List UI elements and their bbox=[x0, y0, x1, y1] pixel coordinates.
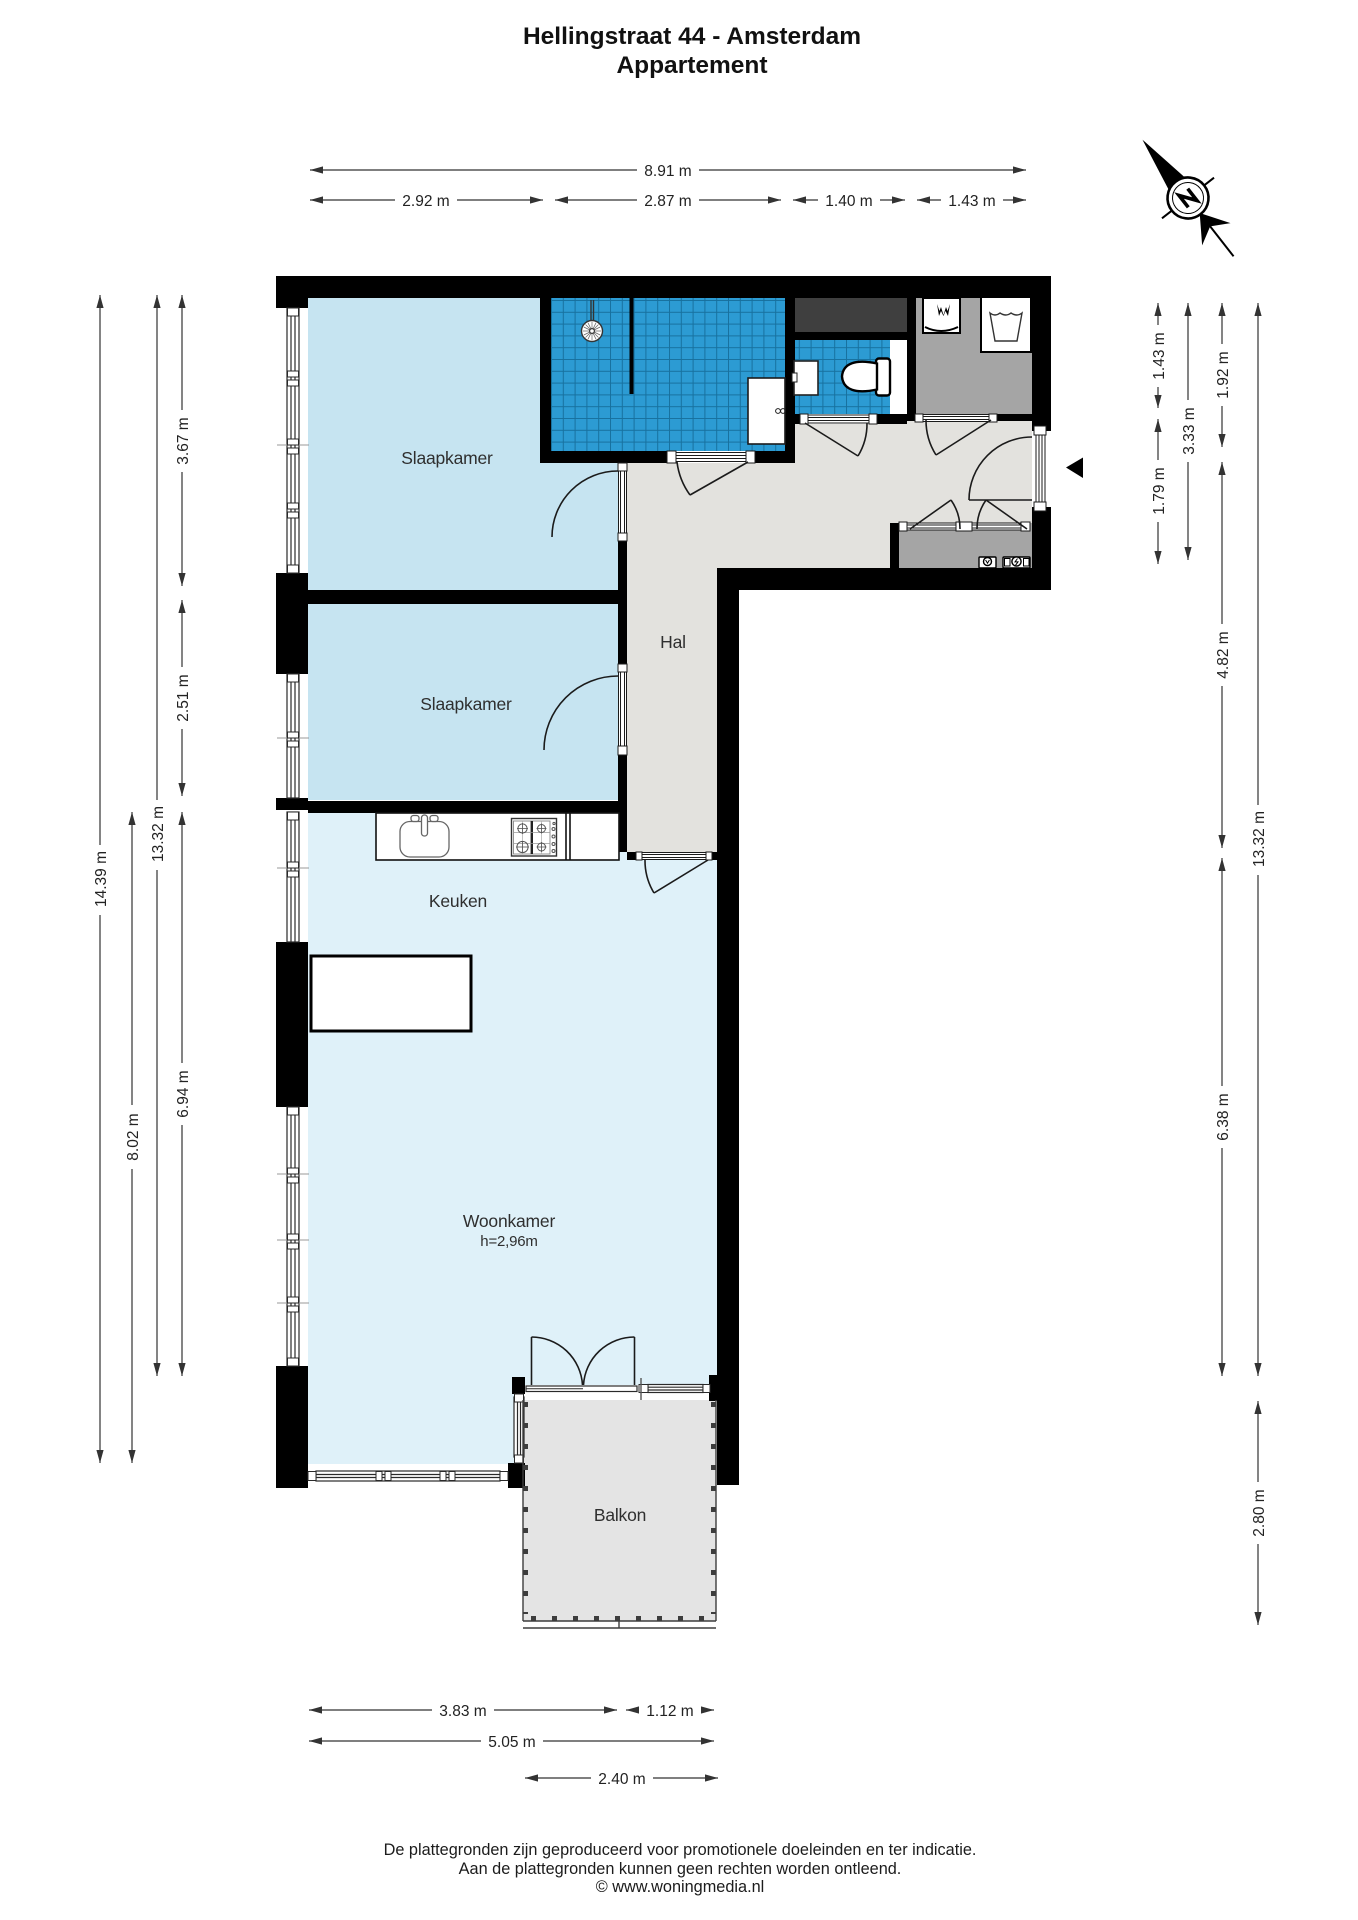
svg-text:Keuken: Keuken bbox=[429, 891, 487, 911]
svg-text:4.82 m: 4.82 m bbox=[1215, 631, 1232, 678]
svg-text:Woonkamer: Woonkamer bbox=[463, 1211, 556, 1231]
svg-text:1.40 m: 1.40 m bbox=[825, 193, 872, 210]
svg-text:Aan de plattegronden kunnen ge: Aan de plattegronden kunnen geen rechten… bbox=[459, 1860, 902, 1878]
svg-text:De plattegronden zijn geproduc: De plattegronden zijn geproduceerd voor … bbox=[384, 1841, 977, 1859]
svg-text:Hal: Hal bbox=[660, 632, 686, 652]
svg-text:2.80 m: 2.80 m bbox=[1251, 1489, 1268, 1536]
svg-text:3.67 m: 3.67 m bbox=[175, 417, 192, 464]
svg-text:2.92 m: 2.92 m bbox=[402, 193, 449, 210]
svg-text:13.32 m: 13.32 m bbox=[1251, 811, 1268, 867]
svg-text:© www.woningmedia.nl: © www.woningmedia.nl bbox=[596, 1878, 765, 1896]
svg-text:6.94 m: 6.94 m bbox=[175, 1070, 192, 1117]
svg-text:3.83 m: 3.83 m bbox=[439, 1703, 486, 1720]
svg-text:5.05 m: 5.05 m bbox=[488, 1734, 535, 1751]
svg-text:8.91 m: 8.91 m bbox=[644, 163, 691, 180]
svg-text:h=2,96m: h=2,96m bbox=[480, 1233, 537, 1250]
svg-text:2.40 m: 2.40 m bbox=[598, 1771, 645, 1788]
svg-text:Slaapkamer: Slaapkamer bbox=[420, 694, 512, 714]
svg-text:Slaapkamer: Slaapkamer bbox=[401, 448, 493, 468]
svg-text:Balkon: Balkon bbox=[594, 1505, 646, 1525]
svg-text:3.33 m: 3.33 m bbox=[1181, 407, 1198, 454]
svg-text:6.38 m: 6.38 m bbox=[1215, 1093, 1232, 1140]
svg-text:1.79 m: 1.79 m bbox=[1151, 467, 1168, 514]
svg-text:Appartement: Appartement bbox=[616, 52, 767, 79]
svg-text:1.43 m: 1.43 m bbox=[948, 193, 995, 210]
svg-text:2.87 m: 2.87 m bbox=[644, 193, 691, 210]
svg-text:8.02 m: 8.02 m bbox=[125, 1113, 142, 1160]
svg-text:1.12 m: 1.12 m bbox=[646, 1703, 693, 1720]
svg-text:2.51 m: 2.51 m bbox=[175, 674, 192, 721]
svg-text:14.39 m: 14.39 m bbox=[93, 851, 110, 907]
svg-text:13.32 m: 13.32 m bbox=[150, 806, 167, 862]
svg-text:1.43 m: 1.43 m bbox=[1151, 332, 1168, 379]
svg-text:Hellingstraat 44 - Amsterdam: Hellingstraat 44 - Amsterdam bbox=[523, 23, 861, 50]
svg-text:1.92 m: 1.92 m bbox=[1215, 351, 1232, 398]
